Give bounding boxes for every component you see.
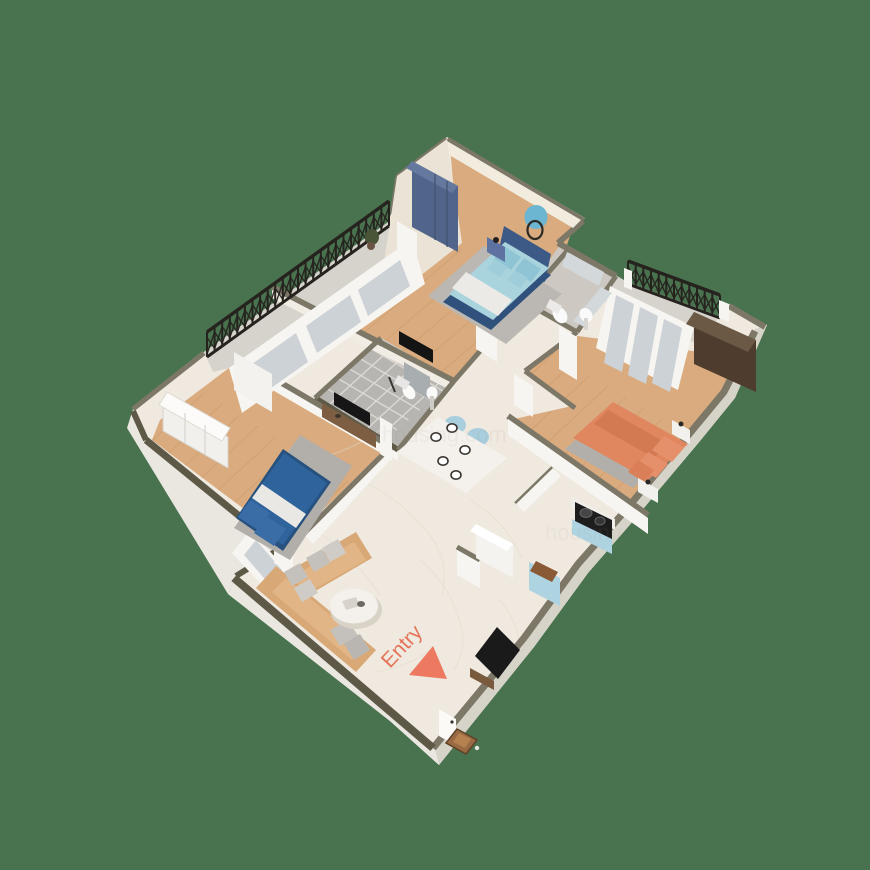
svg-text:housing.com: housing.com — [382, 422, 507, 447]
